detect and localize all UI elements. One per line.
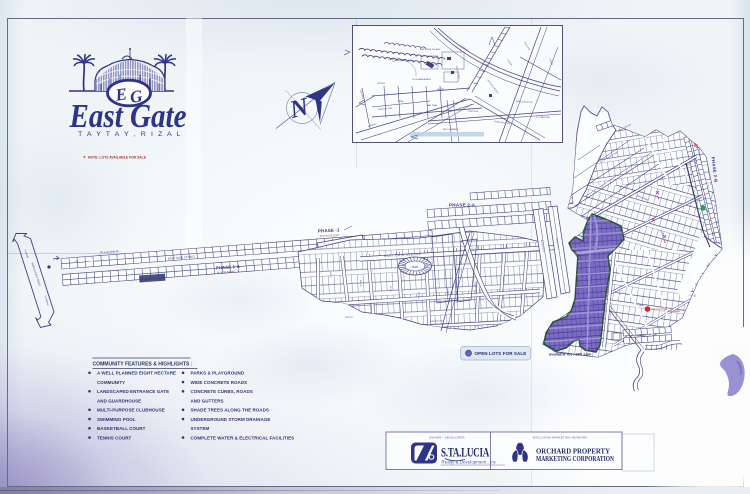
svg-text:CLUB MANILA EAST: CLUB MANILA EAST bbox=[412, 78, 432, 81]
svg-text:PHASE 2-B: PHASE 2-B bbox=[711, 157, 719, 183]
svg-text:J.M.: J.M. bbox=[75, 261, 79, 263]
svg-text:SAN JUAN: SAN JUAN bbox=[427, 104, 437, 107]
svg-text:PARKS & PLAYGROUND: PARKS & PLAYGROUND bbox=[191, 371, 245, 376]
svg-text:A WELL PLANNED EIGHT HECTARE: A WELL PLANNED EIGHT HECTARE bbox=[97, 371, 176, 376]
svg-text:SYSTEM: SYSTEM bbox=[191, 426, 210, 431]
svg-text:WIDE CONCRETE ROADS: WIDE CONCRETE ROADS bbox=[191, 380, 248, 385]
svg-text:CAMIA: CAMIA bbox=[502, 276, 505, 283]
svg-text:AND GUARDHOUSE: AND GUARDHOUSE bbox=[97, 398, 141, 403]
svg-text:OPEN LOTS FOR SALE: OPEN LOTS FOR SALE bbox=[475, 351, 527, 356]
svg-text:1": 1" bbox=[693, 293, 697, 298]
svg-text:no sqm: no sqm bbox=[668, 309, 680, 313]
svg-text:Realty & Development , Inc: Realty & Development , Inc bbox=[442, 460, 497, 465]
svg-text:DAISY: DAISY bbox=[329, 272, 332, 279]
svg-text:COMMUNITY FEATURES & HIGHL: COMMUNITY FEATURES & HIGHLIGHTS : bbox=[93, 362, 193, 368]
svg-text:MULTI-PURPOSE CLUBHOUSE: MULTI-PURPOSE CLUBHOUSE bbox=[97, 408, 165, 413]
svg-text:to Manila: to Manila bbox=[24, 249, 30, 259]
svg-text:COMMUNITY: COMMUNITY bbox=[97, 380, 125, 385]
svg-text:TENNIS COURT: TENNIS COURT bbox=[97, 435, 132, 440]
svg-text:East Gate: East Gate bbox=[69, 98, 187, 135]
svg-text:T A Y T A Y , R I Z A L: T A Y T A Y , R I Z A L bbox=[78, 131, 182, 138]
svg-text:PILA-ALAMEHR: PILA-ALAMEHR bbox=[100, 249, 119, 254]
svg-text:RIZAL: RIZAL bbox=[398, 100, 405, 103]
svg-text:AND GUTTERS: AND GUTTERS bbox=[191, 398, 224, 403]
svg-text:S.TA.LUCIA: S.TA.LUCIA bbox=[441, 446, 490, 460]
svg-text:ILANG-ILANG: ILANG-ILANG bbox=[474, 282, 477, 295]
svg-text:EXCLUSIVE MARKETING NETWORK: EXCLUSIVE MARKETING NETWORK bbox=[533, 436, 587, 440]
svg-text:UNDERGROUND STORM DRAINAGE: UNDERGROUND STORM DRAINAGE bbox=[191, 417, 271, 422]
svg-text:LILAC: LILAC bbox=[389, 286, 392, 292]
svg-text:NOTE: LOTS AVAILABLE FOR SALE: NOTE: LOTS AVAILABLE FOR SALE bbox=[88, 156, 146, 160]
svg-text:MARKETING CORPORATION: MARKETING CORPORATION bbox=[536, 455, 614, 463]
svg-text:CONCRETE CURBS, ROADS: CONCRETE CURBS, ROADS bbox=[191, 389, 253, 394]
svg-text:EAST GATE VILLAGE: EAST GATE VILLAGE bbox=[420, 48, 441, 51]
svg-text:TIKLING: TIKLING bbox=[377, 83, 385, 85]
svg-text:SWIMMING POOL: SWIMMING POOL bbox=[97, 417, 136, 422]
svg-text:PHASE -1: PHASE -1 bbox=[318, 227, 340, 233]
svg-text:N: N bbox=[286, 93, 312, 124]
svg-text:COMPLETE WATER & ELECTRICAL FA: COMPLETE WATER & ELECTRICAL FACILITIES bbox=[191, 435, 295, 440]
svg-text:IRIS ST: IRIS ST bbox=[359, 280, 361, 288]
svg-text:TAYTAY: TAYTAY bbox=[437, 88, 445, 91]
svg-text:available lot : 268 sqm: available lot : 268 sqm bbox=[549, 352, 592, 357]
svg-text:PILA ON BAHAO: PILA ON BAHAO bbox=[217, 270, 236, 274]
svg-text:PARK: PARK bbox=[412, 266, 419, 269]
svg-text:TO STA LUCIA: TO STA LUCIA bbox=[536, 116, 550, 119]
svg-text:ADELFA: ADELFA bbox=[345, 316, 353, 319]
svg-text:OWNER / DEVELOPER: OWNER / DEVELOPER bbox=[429, 436, 465, 440]
svg-text:ROSAL: ROSAL bbox=[417, 292, 421, 300]
svg-text:BRGY STA ANA: BRGY STA ANA bbox=[443, 128, 458, 131]
svg-text:LANDSCAPED ENTRANCE GATE: LANDSCAPED ENTRANCE GATE bbox=[97, 389, 169, 394]
svg-text:JUNCTION: JUNCTION bbox=[468, 111, 479, 113]
svg-text:SHADE TREES ALONG THE ROADS: SHADE TREES ALONG THE ROADS bbox=[191, 408, 269, 413]
svg-text:BASKETBALL COURT: BASKETBALL COURT bbox=[97, 426, 146, 431]
